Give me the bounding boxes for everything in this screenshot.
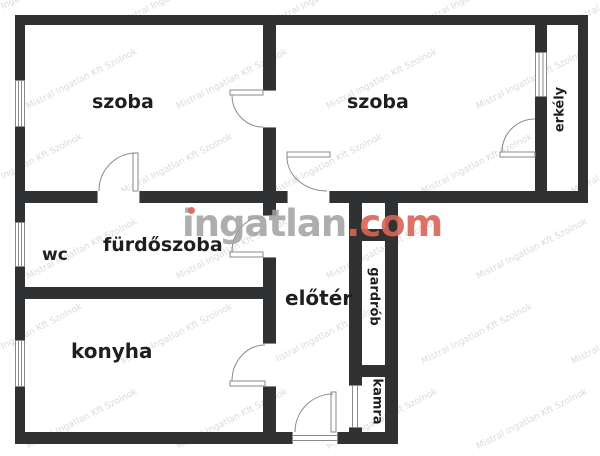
door-jambs: [98, 91, 363, 445]
wall-shaft-divider: [362, 229, 385, 241]
window-balcony: [535, 52, 547, 97]
room-label-bedroom-left: szoba: [92, 91, 154, 113]
room-label-hall: előtér: [285, 286, 352, 310]
door-opening-bedroom-bathroom: [97, 191, 140, 203]
room-label-bedroom-right: szoba: [347, 91, 409, 113]
door-arc-hall-bedroom: [287, 157, 327, 191]
room-label-wardrobe: gardrób: [367, 267, 382, 327]
door-opening-hall-kitchen: [263, 343, 276, 387]
wall-bottom-outer: [15, 432, 398, 444]
door-leaf-hall-kitchen: [230, 381, 265, 386]
door-opening-entrance: [292, 432, 338, 444]
watermark-tile: Mistral Ingatlan Kft Szolnok: [0, 132, 84, 197]
wall-top-outer: [15, 15, 588, 25]
watermark-tile: Mistral Ingatlan Kft Szolnok: [475, 47, 589, 112]
door-leaves: [133, 90, 535, 432]
watermark-tile-layer: Mistral Ingatlan Kft SzolnokMistral Inga…: [0, 0, 600, 456]
door-opening-bedroom-bedroom: [263, 90, 276, 128]
door-leaf-hall-bathroom: [230, 252, 263, 257]
door-arc-balcony: [502, 119, 535, 152]
wall-right-outer: [578, 15, 588, 203]
wall-closet-right: [385, 203, 398, 432]
window-bathroom: [15, 222, 25, 267]
door-leaf-balcony: [500, 152, 535, 157]
door-leaf-bedroom-bedroom: [230, 90, 263, 95]
floorplan-canvas: Mistral Ingatlan Kft SzolnokMistral Inga…: [0, 0, 600, 456]
door-opening-hall-bedroom: [287, 191, 330, 203]
watermark-tile: Mistral Ingatlan Kft Szolnok: [420, 132, 534, 197]
door-leaf-hall-bedroom: [287, 152, 330, 157]
door-arc-bedroom-bedroom: [232, 95, 263, 127]
watermark-tile: Mistral Ingatlan Kft Szolnok: [120, 132, 234, 197]
watermark-tile: Mistral Ingatlan Kft Szolnok: [570, 302, 600, 367]
door-arcs: [99, 95, 535, 432]
door-arc-entrance: [295, 394, 333, 432]
wall-bathroom-kitchen: [25, 287, 275, 299]
room-label-bathroom: fürdőszoba: [103, 234, 223, 256]
watermark-tile: Mistral Ingatlan Kft Szolnok: [270, 132, 384, 197]
wall-balcony-divider: [535, 25, 547, 191]
watermark-logo-i-dot: [188, 207, 195, 214]
watermark-tile: Mistral Ingatlan Kft Szolnok: [420, 302, 534, 367]
door-arc-hall-bathroom: [232, 217, 263, 252]
room-label-balcony: erkély: [553, 80, 568, 140]
window-kitchen: [15, 340, 25, 387]
watermark-tile: Mistral Ingatlan Kft Szolnok: [475, 387, 589, 452]
watermark-tile: Mistral Ingatlan Kft Szolnok: [475, 217, 589, 282]
room-label-kitchen: konyha: [71, 339, 153, 363]
room-label-pantry: kamra: [370, 372, 385, 432]
door-leaf-entrance: [331, 392, 336, 432]
door-arc-bedroom-bathroom: [99, 153, 136, 191]
door-opening-hall-bathroom: [263, 215, 276, 258]
door-arc-hall-kitchen: [232, 345, 265, 381]
linework-overlay: [0, 0, 600, 456]
window-bedroom-left: [15, 80, 25, 127]
watermark-tile: Mistral Ingatlan Kft Szolnok: [325, 217, 439, 282]
room-label-wc: wc: [42, 245, 68, 265]
door-leaf-bedroom-bathroom: [133, 153, 138, 191]
door-opening-pantry: [349, 385, 362, 428]
